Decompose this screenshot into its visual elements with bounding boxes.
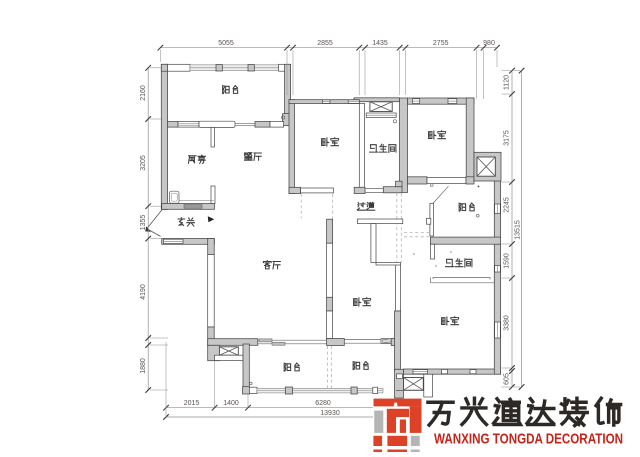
svg-text:1880: 1880 — [140, 358, 147, 374]
svg-text:1355: 1355 — [140, 215, 147, 231]
svg-text:2245: 2245 — [504, 197, 511, 213]
svg-text:5055: 5055 — [218, 40, 234, 47]
svg-text:13515: 13515 — [515, 220, 522, 240]
svg-text:980: 980 — [483, 40, 495, 47]
svg-text:2855: 2855 — [317, 40, 333, 47]
svg-text:13930: 13930 — [320, 410, 340, 417]
svg-text:1435: 1435 — [372, 40, 388, 47]
svg-text:605: 605 — [504, 373, 511, 385]
svg-text:1590: 1590 — [504, 253, 511, 269]
svg-text:3380: 3380 — [504, 315, 511, 331]
svg-text:1400: 1400 — [223, 400, 239, 407]
svg-text:2015: 2015 — [184, 400, 200, 407]
svg-text:2160: 2160 — [140, 85, 147, 101]
svg-text:3175: 3175 — [504, 130, 511, 146]
svg-text:4190: 4190 — [140, 284, 147, 300]
svg-text:6280: 6280 — [315, 400, 331, 407]
svg-text:3205: 3205 — [140, 155, 147, 171]
svg-text:WANXING TONGDA DECORATION: WANXING TONGDA DECORATION — [434, 430, 623, 447]
svg-text:2755: 2755 — [433, 40, 449, 47]
svg-text:1120: 1120 — [504, 75, 511, 90]
